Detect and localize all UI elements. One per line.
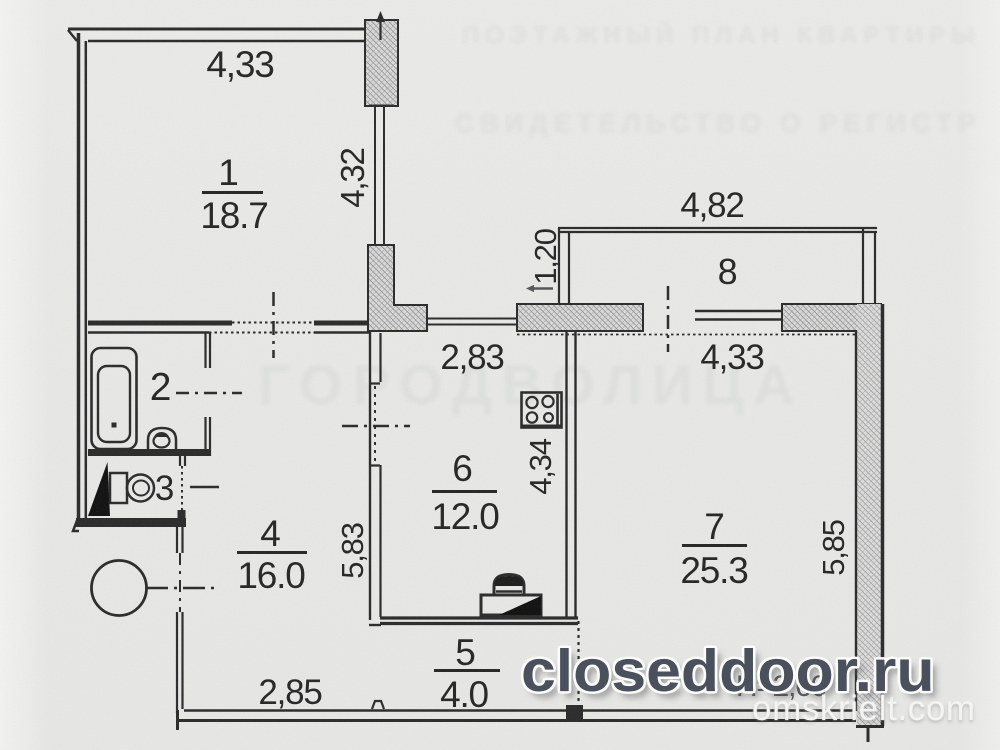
svg-text:8: 8 <box>718 251 737 292</box>
svg-text:2: 2 <box>150 366 171 409</box>
svg-text:2,83: 2,83 <box>440 338 503 377</box>
svg-text:5,85: 5,85 <box>816 520 851 576</box>
svg-text:4,33: 4,33 <box>206 44 273 85</box>
svg-text:18.7: 18.7 <box>200 195 267 236</box>
svg-text:5: 5 <box>455 632 475 673</box>
svg-text:1: 1 <box>218 152 237 193</box>
svg-text:3: 3 <box>155 469 173 508</box>
svg-text:16.0: 16.0 <box>237 555 305 596</box>
svg-text:2,85: 2,85 <box>258 673 321 712</box>
svg-text:4: 4 <box>260 513 280 554</box>
svg-text:6: 6 <box>452 448 471 489</box>
svg-text:4.0: 4.0 <box>440 674 488 715</box>
svg-text:5,83: 5,83 <box>335 523 370 579</box>
svg-text:4,82: 4,82 <box>680 186 743 225</box>
svg-text:25.3: 25.3 <box>680 550 747 591</box>
svg-text:4,34: 4,34 <box>523 438 558 494</box>
svg-text:12.0: 12.0 <box>431 496 499 537</box>
svg-text:4,32: 4,32 <box>334 148 371 207</box>
svg-text:1,20: 1,20 <box>528 228 563 284</box>
svg-text:7: 7 <box>704 506 723 547</box>
svg-text:4,33: 4,33 <box>700 338 763 377</box>
